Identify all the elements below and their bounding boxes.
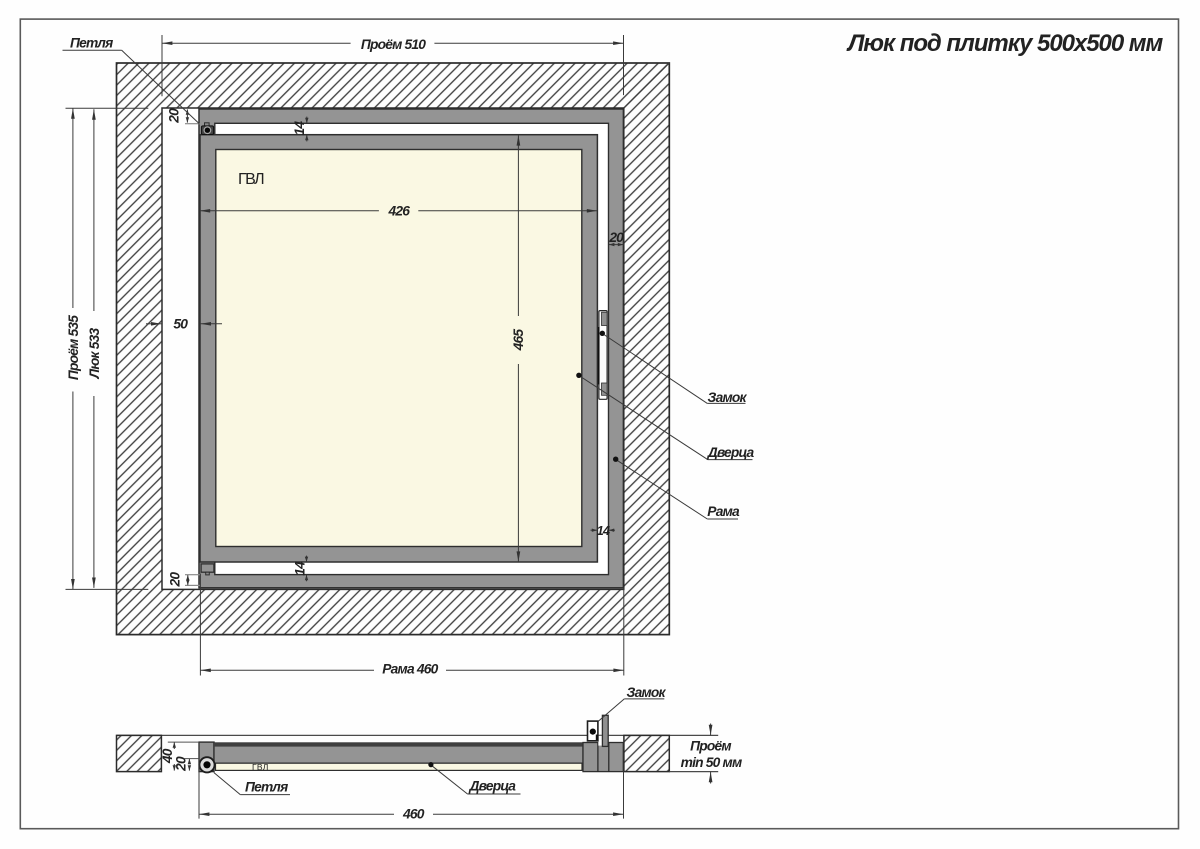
svg-text:426: 426 <box>387 204 410 219</box>
svg-text:Проём: Проём <box>690 739 731 754</box>
svg-text:50: 50 <box>173 317 188 332</box>
svg-text:20: 20 <box>167 572 182 588</box>
svg-text:465: 465 <box>511 329 526 352</box>
svg-text:Рама 460: Рама 460 <box>382 662 438 677</box>
svg-text:Дверца: Дверца <box>707 445 755 460</box>
svg-text:20: 20 <box>608 230 624 245</box>
svg-text:Петля: Петля <box>70 36 113 51</box>
svg-text:ГВЛ: ГВЛ <box>238 171 264 188</box>
svg-text:Замок: Замок <box>627 685 667 700</box>
svg-text:ГВЛ: ГВЛ <box>252 762 269 772</box>
svg-text:20: 20 <box>174 756 189 772</box>
svg-text:460: 460 <box>402 807 425 822</box>
svg-text:14: 14 <box>292 561 307 576</box>
svg-text:Люк под плитку 500х500 мм: Люк под плитку 500х500 мм <box>846 30 1164 57</box>
svg-text:Дверца: Дверца <box>469 779 517 794</box>
svg-text:Петля: Петля <box>245 780 288 795</box>
svg-text:Проём 510: Проём 510 <box>361 37 426 52</box>
svg-text:Люк 533: Люк 533 <box>87 328 102 380</box>
svg-text:40: 40 <box>160 748 175 764</box>
svg-text:Проём 535: Проём 535 <box>66 315 81 380</box>
svg-text:min 50 мм: min 50 мм <box>681 755 742 770</box>
svg-text:14: 14 <box>597 523 610 538</box>
svg-text:Рама: Рама <box>707 504 740 519</box>
svg-text:20: 20 <box>166 108 181 124</box>
svg-text:Замок: Замок <box>708 390 748 405</box>
svg-text:14: 14 <box>292 121 307 136</box>
